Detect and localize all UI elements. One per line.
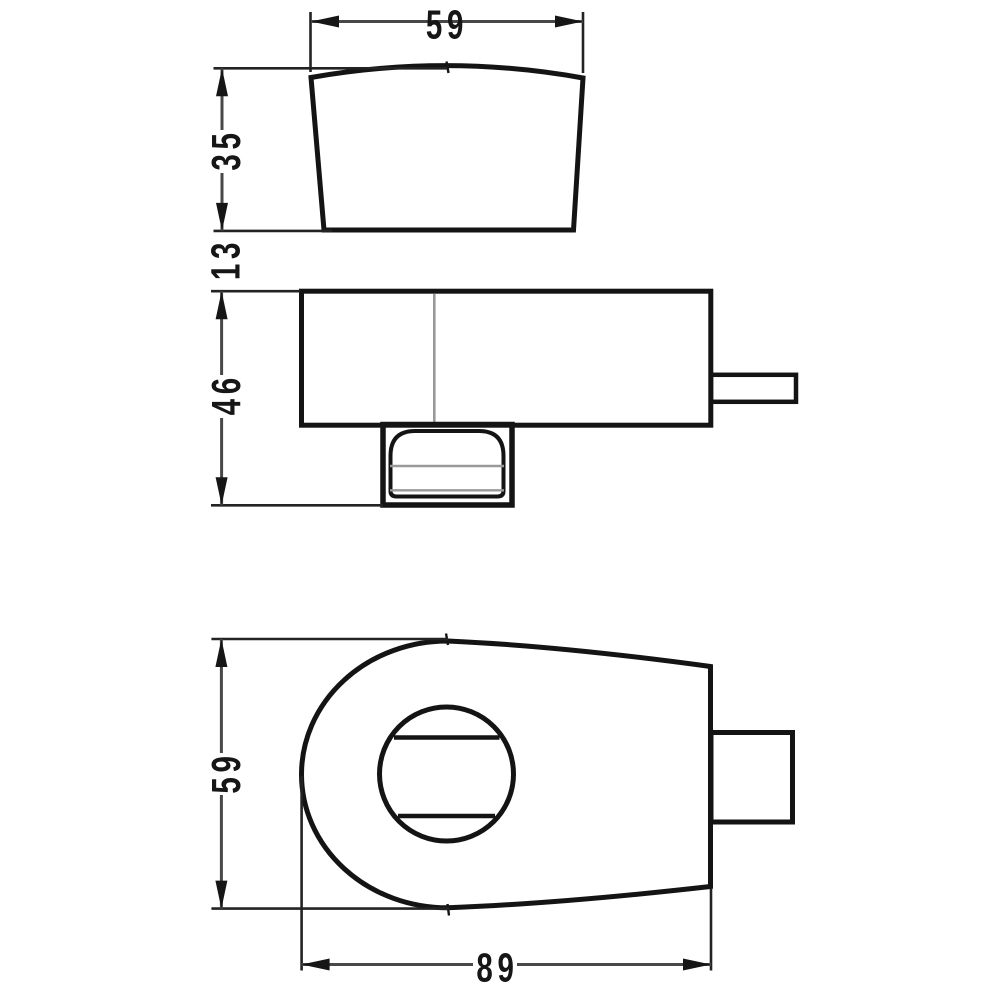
svg-text:59: 59 (426, 2, 468, 48)
svg-text:35: 35 (203, 128, 249, 170)
svg-text:13: 13 (203, 238, 249, 280)
svg-text:59: 59 (203, 751, 249, 793)
svg-text:89: 89 (476, 945, 518, 991)
svg-text:46: 46 (203, 373, 249, 415)
